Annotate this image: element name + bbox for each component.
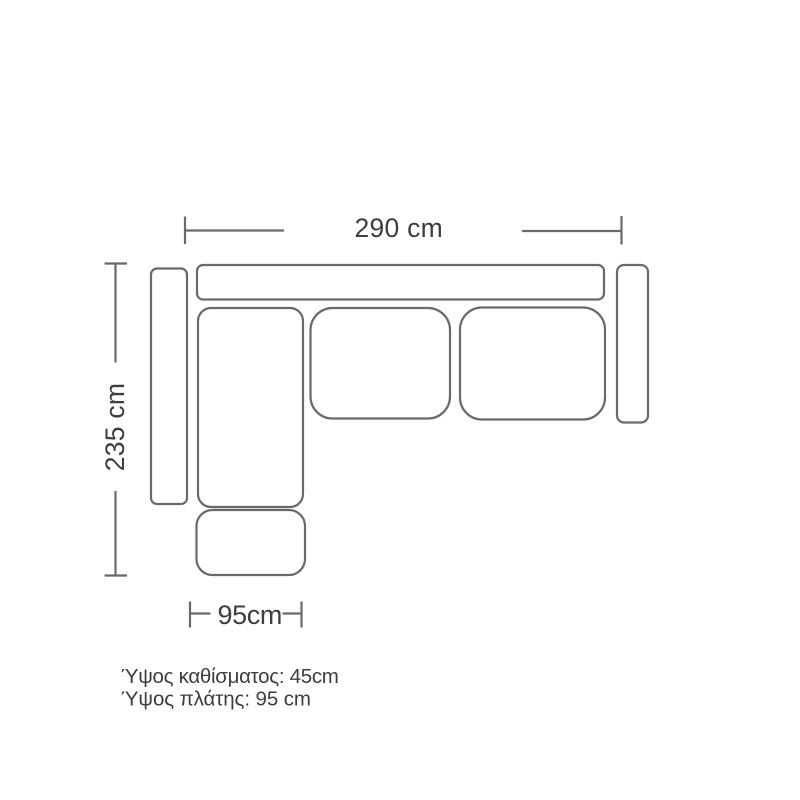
svg-text:Ύψος καθίσματος: 45cm: Ύψος καθίσματος: 45cm [121, 665, 339, 688]
svg-text:95cm: 95cm [218, 600, 282, 630]
svg-text:290 cm: 290 cm [355, 213, 443, 243]
svg-text:235 cm: 235 cm [100, 383, 130, 471]
svg-text:Ύψος πλάτης: 95 cm: Ύψος πλάτης: 95 cm [121, 688, 311, 711]
